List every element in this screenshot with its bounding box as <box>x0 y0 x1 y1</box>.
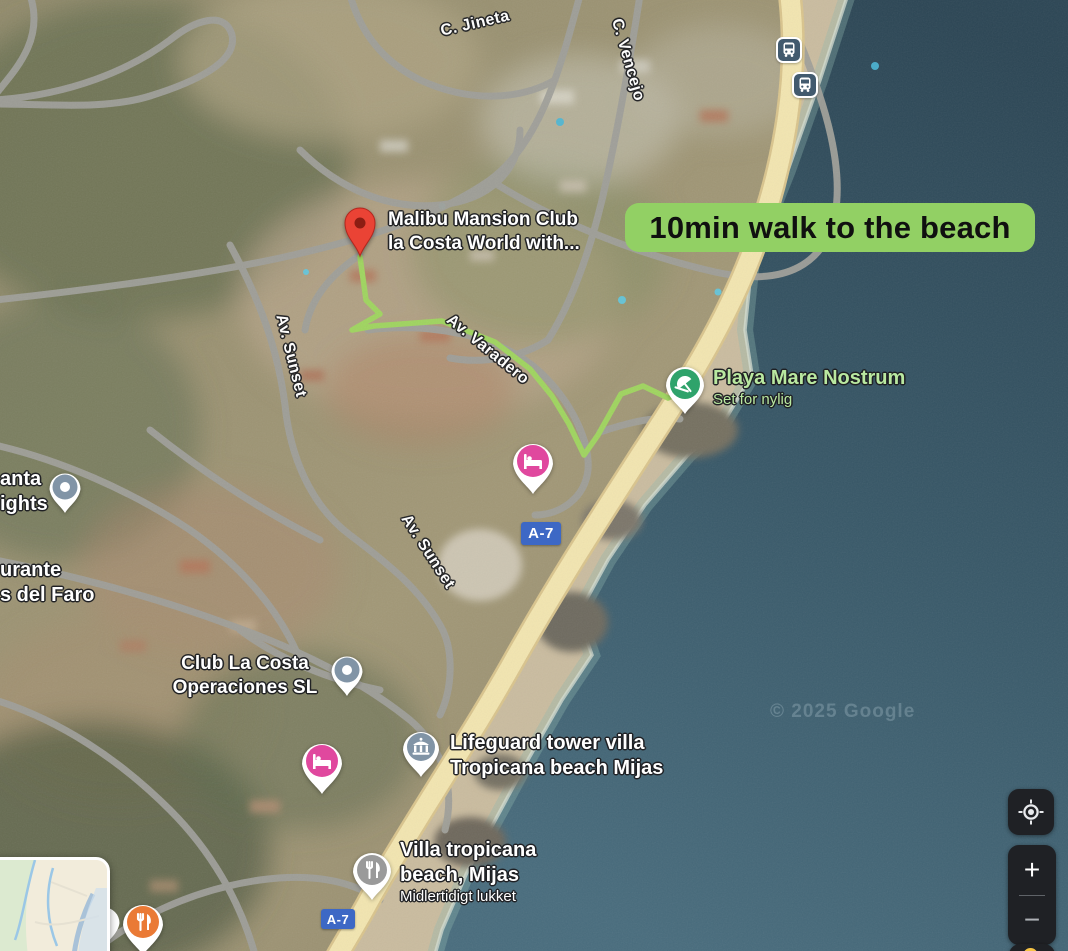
poi-label-partial-bottom: urante s del Faro <box>0 558 94 608</box>
poi-label-villa-tropicana[interactable]: Villa tropicana beach, Mijas Midlertidig… <box>400 838 536 906</box>
poi-label-partial-top: anta ights <box>0 467 48 517</box>
map-canvas[interactable]: C. Jineta C. Vencejo Av. Sunset Av. Suns… <box>0 0 1068 951</box>
road-shield-a7-south: A-7 <box>321 909 355 929</box>
zoom-control: + − <box>1008 845 1056 945</box>
poi-marker-lodging-1[interactable] <box>509 438 557 496</box>
beach-walk-banner: 10min walk to the beach <box>625 203 1035 252</box>
poi-marker-club-la-costa[interactable] <box>329 652 365 698</box>
inset-overview-map[interactable] <box>0 857 110 951</box>
beach-poi-icon <box>663 362 707 416</box>
poi-marker-generic-left[interactable] <box>47 469 83 515</box>
generic-poi-icon <box>329 652 365 698</box>
map-attribution: © 2025 Google <box>770 701 915 723</box>
destination-pin[interactable] <box>343 207 377 258</box>
bus-stop-icon-1[interactable] <box>776 37 802 63</box>
poi-marker-villa-tropicana[interactable] <box>350 848 394 902</box>
poi-marker-lodging-2[interactable] <box>298 738 346 796</box>
my-location-icon <box>1018 799 1044 825</box>
bus-icon <box>794 74 816 96</box>
restaurant-icon <box>350 848 394 902</box>
map-pin-icon <box>343 207 377 258</box>
bus-stop-icon-2[interactable] <box>792 72 818 98</box>
lodging-icon <box>298 738 346 796</box>
landmark-icon <box>400 727 442 779</box>
poi-label-lifeguard[interactable]: Lifeguard tower villa Tropicana beach Mi… <box>450 731 663 781</box>
poi-marker-restaurant-orange[interactable] <box>119 899 167 951</box>
my-location-button[interactable] <box>1008 789 1054 835</box>
generic-poi-icon <box>47 469 83 515</box>
lodging-icon <box>509 438 557 496</box>
road-shield-a7-north: A-7 <box>521 522 561 545</box>
poi-status-villa: Midlertidigt lukket <box>400 888 536 907</box>
poi-label-club-la-costa[interactable]: Club La Costa Operaciones SL <box>130 652 360 699</box>
zoom-out-button[interactable]: − <box>1008 896 1056 946</box>
zoom-in-button[interactable]: + <box>1008 845 1056 895</box>
poi-status-playa: Set for nylig <box>713 391 905 410</box>
poi-label-playa-mare-nostrum[interactable]: Playa Mare Nostrum Set for nylig <box>713 366 905 409</box>
bus-icon <box>778 39 800 61</box>
restaurant-icon <box>119 899 167 951</box>
poi-marker-playa-mare-nostrum[interactable] <box>663 362 707 416</box>
pegman-control[interactable] <box>1009 944 1055 951</box>
poi-marker-lifeguard[interactable] <box>400 727 442 779</box>
inset-map-graphic <box>0 860 107 951</box>
poi-label-malibu-mansion[interactable]: Malibu Mansion Club la Costa World with.… <box>388 208 580 255</box>
